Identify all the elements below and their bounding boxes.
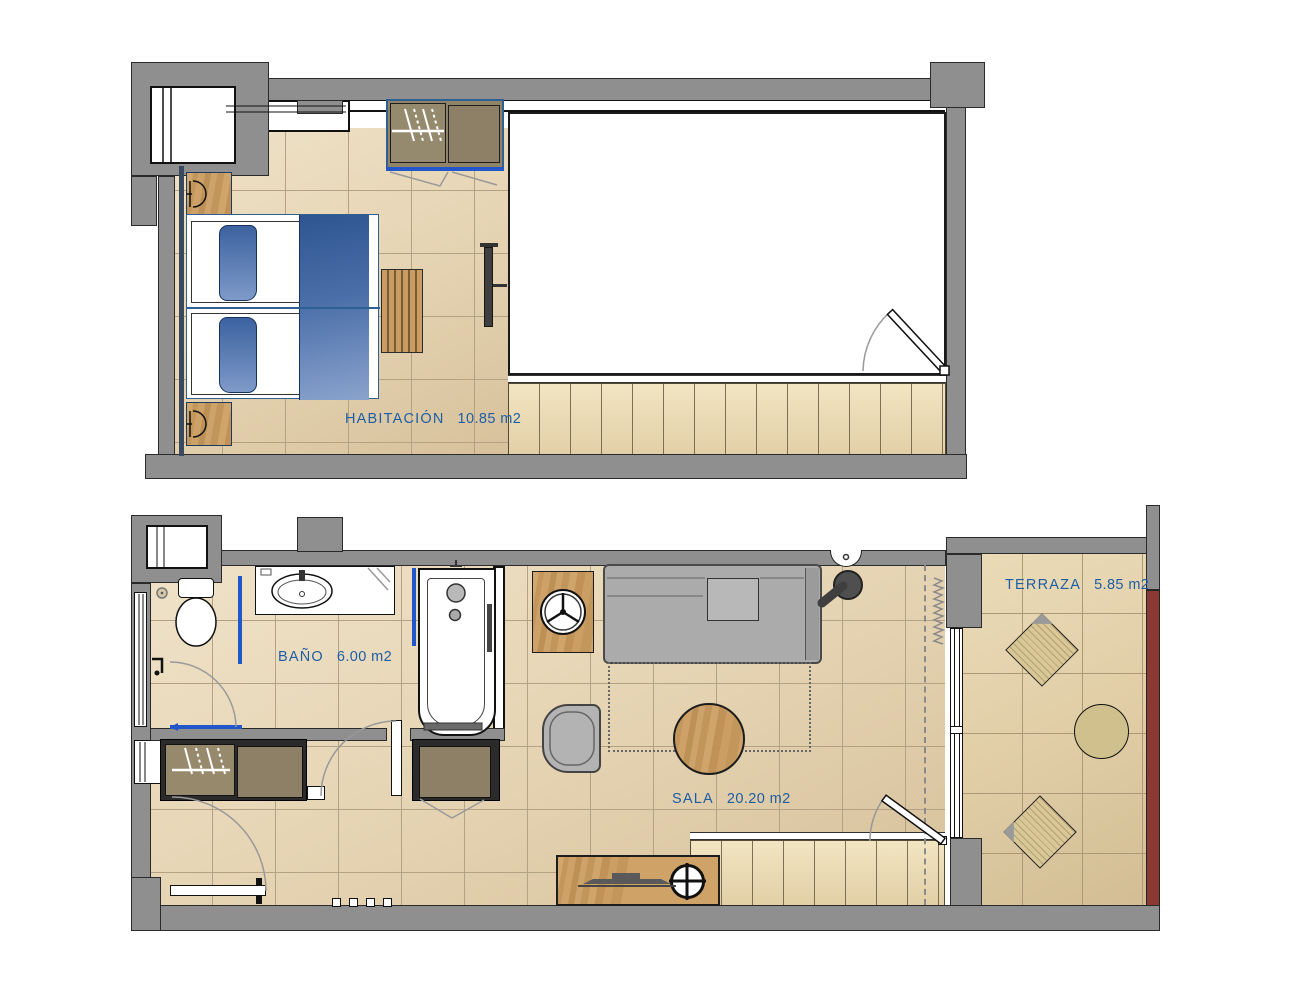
room-area-habitacion: 10.85 m2 bbox=[458, 411, 522, 427]
shower-glass-2 bbox=[412, 568, 416, 646]
window-niche-topleft-lower bbox=[146, 525, 208, 569]
nightstand-1 bbox=[186, 172, 232, 216]
wall-top-lower bbox=[150, 550, 946, 566]
room-label-bano: BAÑO6.00 m2 bbox=[278, 649, 392, 665]
entry-door-handle-b bbox=[256, 896, 262, 904]
sill-mark-4 bbox=[383, 898, 392, 907]
deck-nosing-upper bbox=[508, 375, 946, 383]
room-label-terraza: TERRAZA5.85 m2 bbox=[1005, 577, 1149, 593]
closet-2-door bbox=[419, 746, 491, 798]
wood-deck-lower bbox=[690, 840, 945, 906]
terrace-door-free-end bbox=[878, 796, 886, 804]
toilet-tank bbox=[178, 578, 214, 598]
terrace-door-hinge bbox=[938, 836, 947, 845]
pillow-2 bbox=[219, 317, 257, 393]
closet-1-door-left bbox=[165, 744, 235, 796]
room-area-sala: 20.20 m2 bbox=[727, 791, 791, 807]
column-top-upper bbox=[297, 100, 343, 114]
desk-stool bbox=[670, 864, 705, 899]
bed-divider-line bbox=[187, 307, 380, 309]
wall-top-terrace bbox=[946, 537, 1160, 554]
vanity-counter bbox=[255, 566, 395, 615]
pier-upper-right bbox=[946, 554, 982, 628]
room-area-terraza: 5.85 m2 bbox=[1094, 577, 1149, 593]
wall-block-bottomleft bbox=[131, 877, 161, 931]
wardrobe-door-left bbox=[390, 103, 446, 163]
column-top-lower bbox=[297, 517, 343, 552]
coffee-table bbox=[673, 703, 745, 775]
bathtub-inner bbox=[427, 578, 485, 726]
wardrobe-track-accent bbox=[386, 167, 504, 171]
tv-wall-arm bbox=[493, 284, 507, 287]
room-name-sala: SALA bbox=[672, 791, 714, 807]
maroon-wall-strip bbox=[1146, 590, 1160, 908]
room-name-bano: BAÑO bbox=[278, 649, 324, 665]
wardrobe-door-right bbox=[448, 105, 500, 163]
room-label-habitacion: HABITACIÓN10.85 m2 bbox=[345, 411, 521, 427]
pier-lower-right bbox=[950, 838, 982, 913]
deck-nosing-lower bbox=[690, 832, 945, 840]
entry-door-handle-a bbox=[256, 878, 262, 886]
wall-right-upper bbox=[946, 107, 966, 457]
towel-rail bbox=[487, 604, 492, 652]
bath-sliding-track bbox=[170, 725, 242, 729]
wall-block-topright-upper bbox=[930, 62, 985, 108]
sill-mark-3 bbox=[366, 898, 375, 907]
room-label-sala: SALA20.20 m2 bbox=[672, 791, 791, 807]
curtain-dashed-line bbox=[924, 565, 926, 905]
pillow-1 bbox=[219, 225, 257, 301]
closet-2 bbox=[412, 739, 500, 801]
wall-stub-left-upper bbox=[131, 176, 157, 226]
wall-bottom-lower bbox=[150, 905, 1160, 931]
wall-left-upper bbox=[158, 176, 175, 456]
room-area-bano: 6.00 m2 bbox=[337, 649, 392, 665]
window-left-lower bbox=[134, 592, 147, 727]
sill-mark-1 bbox=[332, 898, 341, 907]
sofa-armrest bbox=[805, 568, 819, 660]
nightstand-2 bbox=[186, 402, 232, 446]
floor-lamp bbox=[833, 570, 863, 600]
bathtub bbox=[418, 568, 496, 736]
armchair bbox=[542, 704, 601, 773]
sill-mark-2 bbox=[349, 898, 358, 907]
wall-bottom-upper bbox=[145, 454, 967, 479]
closet-1 bbox=[160, 739, 307, 801]
room-name-terraza: TERRAZA bbox=[1005, 577, 1081, 593]
window-niche-topleft-upper bbox=[150, 86, 236, 164]
sofa bbox=[603, 564, 822, 664]
closet-door-jamb bbox=[307, 786, 325, 800]
terrace-table bbox=[1074, 704, 1129, 759]
window-meeting-rail bbox=[950, 726, 963, 734]
bathroom-door-leaf bbox=[391, 720, 402, 796]
empty-room bbox=[508, 112, 946, 375]
bed-headboard-panel bbox=[179, 166, 184, 456]
entry-door-leaf bbox=[170, 885, 266, 896]
closet-1-door-right bbox=[237, 746, 303, 798]
bed-bench bbox=[381, 269, 423, 353]
wardrobe bbox=[386, 99, 504, 169]
sofa-cushion bbox=[707, 578, 759, 621]
side-table bbox=[532, 571, 594, 653]
wood-deck-upper bbox=[508, 383, 946, 456]
tv-screen bbox=[484, 247, 493, 327]
shower-glass-1 bbox=[238, 576, 242, 664]
room-name-habitacion: HABITACIÓN bbox=[345, 411, 445, 427]
floor-plan-canvas: HABITACIÓN10.85 m2 BAÑO6.00 m2 SALA20.20… bbox=[0, 0, 1302, 1006]
double-bed bbox=[186, 214, 379, 399]
